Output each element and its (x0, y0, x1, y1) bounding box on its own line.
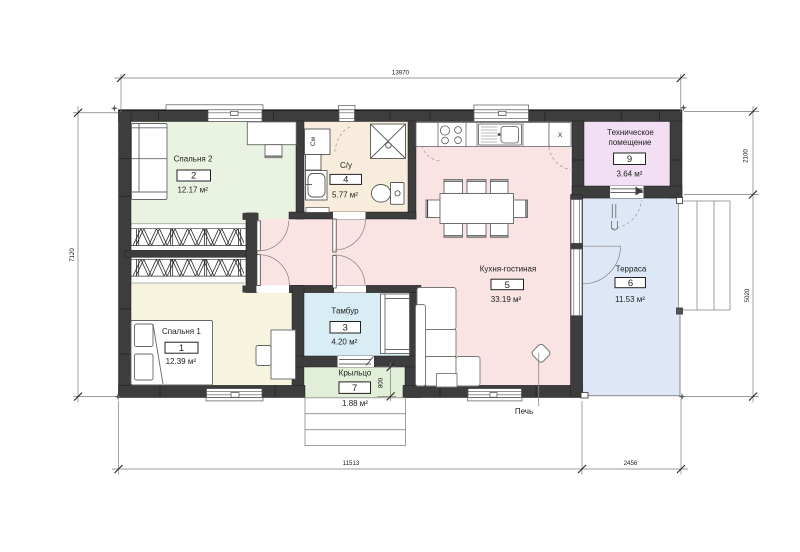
svg-text:Техническое: Техническое (607, 128, 654, 137)
svg-text:4.20 м²: 4.20 м² (331, 337, 357, 346)
svg-text:Кухня-гостиная: Кухня-гостиная (480, 265, 537, 274)
svg-text:13970: 13970 (392, 70, 410, 77)
svg-text:Терраса: Терраса (616, 265, 647, 274)
svg-text:7: 7 (352, 383, 357, 394)
svg-text:2456: 2456 (624, 460, 638, 467)
svg-text:5020: 5020 (744, 288, 751, 302)
svg-text:4: 4 (343, 175, 348, 186)
svg-text:2100: 2100 (743, 149, 750, 163)
svg-text:Тамбур: Тамбур (331, 307, 359, 316)
svg-text:5: 5 (505, 280, 510, 291)
svg-text:33.19 м²: 33.19 м² (491, 295, 522, 304)
svg-text:12.39 м²: 12.39 м² (166, 357, 197, 366)
svg-text:Крыльцо: Крыльцо (339, 369, 372, 378)
svg-text:11.53 м²: 11.53 м² (615, 295, 645, 304)
svg-text:1: 1 (179, 343, 184, 354)
svg-text:800: 800 (378, 377, 385, 388)
svg-text:X: X (558, 132, 563, 139)
svg-text:Спальня 2: Спальня 2 (174, 155, 213, 164)
svg-text:12.17 м²: 12.17 м² (177, 186, 208, 195)
svg-text:5.77 м²: 5.77 м² (332, 191, 358, 200)
svg-text:2: 2 (191, 171, 196, 182)
svg-text:См: См (310, 136, 317, 146)
svg-text:3: 3 (343, 323, 348, 334)
svg-text:3.64 м²: 3.64 м² (617, 169, 643, 178)
svg-text:9: 9 (627, 154, 632, 165)
svg-text:помещение: помещение (608, 138, 652, 147)
svg-text:С/у: С/у (340, 161, 352, 170)
svg-text:Спальня 1: Спальня 1 (162, 327, 201, 336)
svg-text:11513: 11513 (343, 460, 360, 467)
svg-text:7120: 7120 (69, 248, 76, 262)
svg-text:1.88 м²: 1.88 м² (342, 399, 368, 408)
svg-text:Печь: Печь (515, 407, 533, 416)
svg-text:6: 6 (628, 278, 633, 289)
